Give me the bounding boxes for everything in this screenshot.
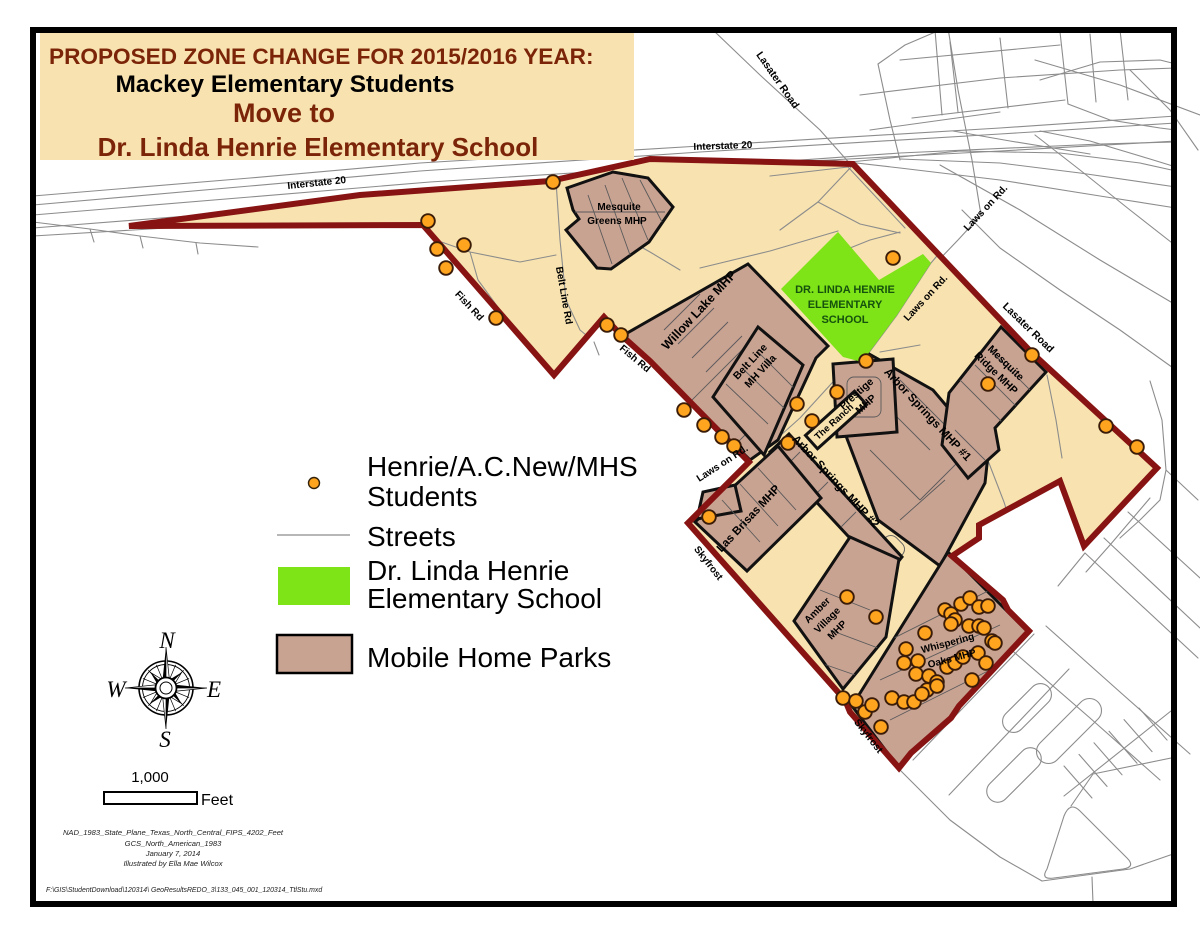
svg-text:F:\GIS\StudentDownload\120314\: F:\GIS\StudentDownload\120314\ GeoResult… — [46, 887, 323, 894]
svg-text:Interstate 20: Interstate 20 — [693, 140, 753, 153]
svg-text:Illustrated by Ella Mae Wilcox: Illustrated by Ella Mae Wilcox — [123, 859, 223, 868]
svg-text:Students: Students — [367, 481, 478, 512]
svg-text:Elementary School: Elementary School — [367, 583, 602, 614]
svg-text:E: E — [206, 677, 221, 702]
svg-text:Move to: Move to — [233, 98, 335, 128]
svg-text:Mesquite: Mesquite — [597, 202, 641, 213]
svg-text:W: W — [106, 677, 127, 702]
svg-text:Dr. Linda Henrie Elementary Sc: Dr. Linda Henrie Elementary School — [98, 132, 539, 162]
svg-text:Feet: Feet — [201, 792, 234, 809]
svg-text:Dr. Linda Henrie: Dr. Linda Henrie — [367, 555, 569, 586]
svg-text:Streets: Streets — [367, 521, 456, 552]
svg-text:DR. LINDA HENRIE: DR. LINDA HENRIE — [795, 284, 895, 296]
svg-text:Henrie/A.C.New/MHS: Henrie/A.C.New/MHS — [367, 451, 638, 482]
svg-text:NAD_1983_State_Plane_Texas_Nor: NAD_1983_State_Plane_Texas_North_Central… — [63, 828, 284, 837]
svg-text:N: N — [158, 628, 176, 653]
svg-text:S: S — [159, 727, 171, 752]
svg-text:ELEMENTARY: ELEMENTARY — [808, 299, 883, 311]
svg-text:1,000: 1,000 — [131, 769, 169, 786]
svg-text:January 7, 2014: January 7, 2014 — [145, 849, 200, 858]
svg-text:GCS_North_American_1983: GCS_North_American_1983 — [125, 839, 222, 848]
svg-text:Mackey Elementary Students: Mackey Elementary Students — [115, 71, 454, 98]
svg-text:Greens MHP: Greens MHP — [587, 216, 647, 227]
svg-text:PROPOSED ZONE CHANGE FOR 2015/: PROPOSED ZONE CHANGE FOR 2015/2016 YEAR: — [49, 44, 594, 69]
svg-text:Mobile Home Parks: Mobile Home Parks — [367, 642, 611, 673]
svg-text:SCHOOL: SCHOOL — [821, 314, 868, 326]
